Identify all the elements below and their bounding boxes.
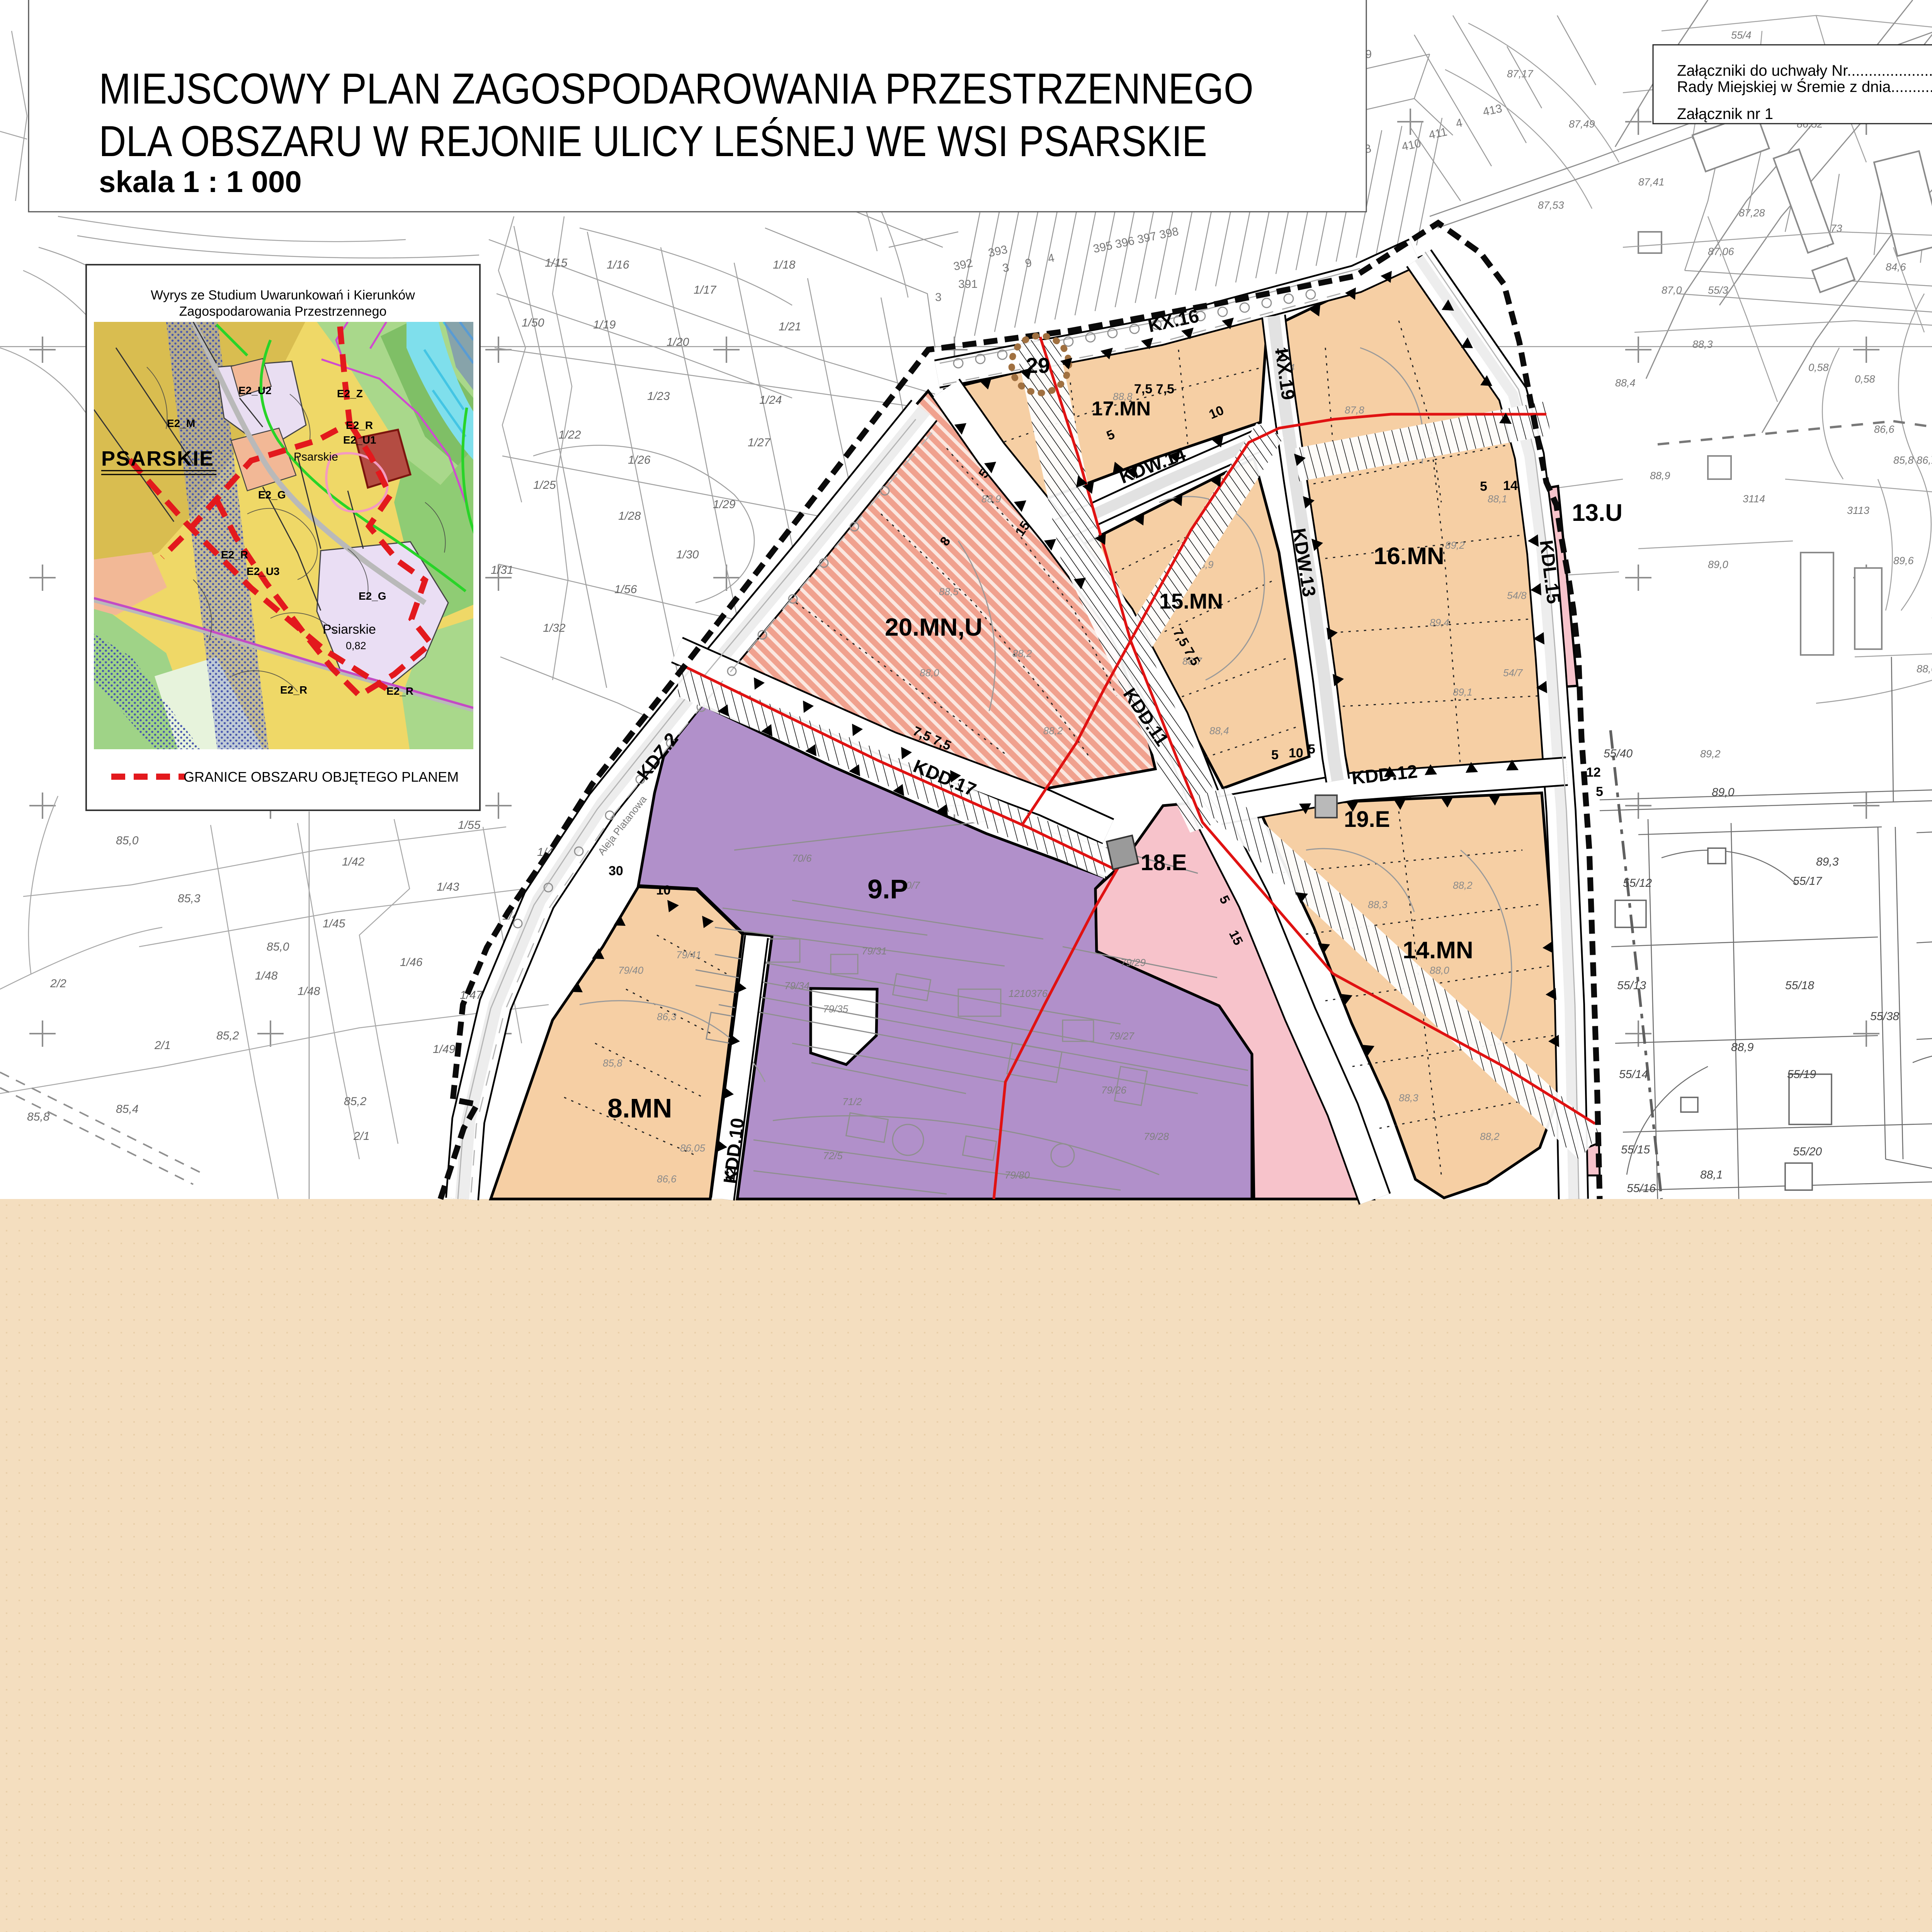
svg-text:86,6: 86,6 (1874, 423, 1895, 435)
svg-text:87,06: 87,06 (1708, 246, 1735, 257)
svg-text:86,05: 86,05 (680, 1142, 706, 1154)
svg-text:3113: 3113 (1847, 505, 1869, 516)
svg-text:0,82: 0,82 (346, 640, 366, 651)
svg-text:55/12: 55/12 (1623, 877, 1652, 889)
svg-text:88,9: 88,9 (1650, 470, 1670, 481)
svg-text:391: 391 (958, 278, 978, 291)
svg-text:1/24: 1/24 (759, 394, 782, 406)
svg-text:79/80: 79/80 (1005, 1169, 1030, 1181)
svg-text:85,2: 85,2 (344, 1095, 367, 1108)
svg-text:15.MN: 15.MN (1159, 589, 1223, 613)
svg-text:18.E: 18.E (1141, 850, 1187, 875)
svg-text:E2_R: E2_R (221, 549, 248, 561)
svg-text:1/31: 1/31 (491, 564, 513, 577)
svg-text:Rady Miejskiej w Śremie z dnia: Rady Miejskiej w Śremie z dnia..........… (1677, 78, 1932, 95)
svg-text:2/1: 2/1 (154, 1039, 171, 1052)
svg-text:1/45: 1/45 (323, 917, 345, 930)
svg-text:79/31: 79/31 (862, 945, 887, 957)
svg-text:Wyrys ze Studium Uwarunkowań i: Wyrys ze Studium Uwarunkowań i Kierunków (151, 288, 415, 303)
svg-text:88,2: 88,2 (1043, 725, 1063, 736)
svg-text:79/35: 79/35 (823, 1003, 849, 1015)
svg-text:Psiarskie: Psiarskie (323, 622, 376, 637)
svg-text:14.MN: 14.MN (1403, 937, 1473, 964)
svg-text:88,9: 88,9 (981, 493, 1001, 505)
svg-text:30: 30 (609, 864, 623, 878)
svg-text:79/40: 79/40 (618, 964, 644, 976)
svg-text:E2_Z: E2_Z (337, 388, 363, 400)
svg-text:89,1: 89,1 (1453, 686, 1473, 698)
svg-text:1/29: 1/29 (713, 498, 736, 511)
svg-text:71/2: 71/2 (842, 1096, 862, 1107)
svg-text:1/23: 1/23 (647, 390, 670, 403)
svg-text:skala 1 : 1 000: skala 1 : 1 000 (99, 165, 302, 199)
svg-text:85,8 86,1: 85,8 86,1 (1893, 454, 1932, 466)
svg-text:1/46: 1/46 (400, 956, 423, 969)
svg-text:89,0: 89,0 (1708, 559, 1728, 570)
svg-text:55/14: 55/14 (1619, 1068, 1648, 1081)
svg-text:86,3: 86,3 (657, 1011, 677, 1022)
svg-text:E2_U3: E2_U3 (247, 565, 280, 577)
svg-text:Zagospodarowania Przestrzenneg: Zagospodarowania Przestrzennego (179, 304, 387, 319)
svg-text:1/25: 1/25 (533, 479, 556, 492)
svg-text:GRANICE OBSZARU OBJĘTEGO PLANE: GRANICE OBSZARU OBJĘTEGO PLANEM (184, 769, 459, 785)
svg-text:54/7: 54/7 (1503, 667, 1523, 679)
svg-text:1/48: 1/48 (298, 985, 320, 998)
svg-text:87,49: 87,49 (1569, 118, 1595, 130)
svg-text:88,2: 88,2 (1012, 648, 1032, 659)
svg-text:88,5: 88,5 (939, 586, 959, 597)
svg-text:87,8: 87,8 (1345, 404, 1364, 416)
svg-text:79/26: 79/26 (1101, 1084, 1127, 1096)
svg-text:5: 5 (1596, 784, 1603, 799)
svg-text:85,0: 85,0 (267, 940, 289, 953)
svg-text:8.MN: 8.MN (607, 1093, 672, 1123)
svg-text:87,28: 87,28 (1739, 207, 1765, 219)
svg-text:70/6: 70/6 (792, 852, 812, 864)
svg-text:1/56: 1/56 (614, 583, 637, 596)
svg-text:12: 12 (1586, 765, 1601, 780)
svg-text:16.MN: 16.MN (1374, 543, 1444, 570)
svg-text:1/19: 1/19 (593, 318, 616, 331)
svg-text:79/28: 79/28 (1144, 1131, 1169, 1142)
svg-text:2/1: 2/1 (353, 1130, 370, 1143)
svg-text:85,2: 85,2 (216, 1029, 239, 1042)
svg-text:1/42: 1/42 (342, 855, 365, 868)
svg-text:86,6: 86,6 (657, 1173, 677, 1185)
svg-text:88,1: 88,1 (1700, 1168, 1723, 1181)
svg-text:2/2: 2/2 (50, 977, 66, 990)
svg-text:5: 5 (1308, 742, 1315, 757)
svg-text:55/17: 55/17 (1793, 875, 1822, 888)
svg-text:55/3: 55/3 (1708, 284, 1728, 296)
svg-text:55/20: 55/20 (1793, 1145, 1822, 1158)
svg-text:1/17: 1/17 (694, 284, 717, 296)
svg-text:5: 5 (1480, 479, 1487, 494)
svg-text:3114: 3114 (1743, 493, 1765, 505)
svg-text:1/32: 1/32 (543, 622, 566, 634)
svg-text:88,1: 88,1 (1488, 493, 1507, 505)
svg-text:7,5 7,5: 7,5 7,5 (1134, 382, 1174, 396)
svg-text:85,4: 85,4 (116, 1103, 138, 1116)
svg-text:1/15: 1/15 (545, 257, 568, 269)
svg-text:85,8: 85,8 (603, 1057, 622, 1069)
svg-text:1/20: 1/20 (667, 336, 689, 349)
svg-text:E2_U1: E2_U1 (343, 434, 376, 446)
svg-text:55/4: 55/4 (1731, 29, 1752, 41)
svg-text:89,3: 89,3 (1816, 855, 1839, 868)
svg-text:88,2: 88,2 (1480, 1131, 1500, 1142)
svg-text:10: 10 (656, 883, 671, 898)
svg-text:20.MN,U: 20.MN,U (885, 613, 983, 641)
svg-text:19.E: 19.E (1344, 807, 1390, 832)
svg-text:79/27: 79/27 (1109, 1030, 1135, 1042)
svg-text:89,4: 89,4 (1430, 617, 1449, 628)
svg-text:88,3: 88,3 (1399, 1092, 1418, 1104)
svg-text:1/18: 1/18 (773, 259, 796, 271)
svg-text:88,6: 88,6 (1917, 663, 1932, 675)
svg-text:87,53: 87,53 (1538, 199, 1564, 211)
svg-text:E2_U2: E2_U2 (238, 384, 272, 396)
svg-text:13.U: 13.U (1572, 500, 1622, 526)
svg-text:88,4: 88,4 (1615, 377, 1636, 389)
svg-text:55/19: 55/19 (1787, 1068, 1816, 1081)
svg-text:10: 10 (1289, 746, 1303, 760)
svg-text:1/28: 1/28 (618, 510, 641, 522)
svg-text:55/18: 55/18 (1785, 979, 1814, 992)
svg-text:88,0: 88,0 (920, 667, 939, 679)
svg-text:87,41: 87,41 (1638, 176, 1665, 188)
svg-text:14: 14 (1503, 478, 1518, 493)
svg-text:88,3: 88,3 (1692, 338, 1713, 350)
svg-text:1/22: 1/22 (558, 429, 581, 441)
svg-text:1/55: 1/55 (458, 819, 481, 832)
svg-text:89,6: 89,6 (1893, 555, 1914, 566)
svg-text:85,0: 85,0 (116, 834, 139, 847)
svg-text:9.P: 9.P (867, 874, 908, 904)
svg-text:MIEJSCOWY PLAN ZAGOSPODAROWANI: MIEJSCOWY PLAN ZAGOSPODAROWANIA PRZESTRZ… (99, 65, 1253, 113)
svg-text:E2_G: E2_G (258, 489, 286, 501)
svg-text:E2_G: E2_G (359, 590, 386, 602)
svg-text:1/26: 1/26 (628, 454, 651, 466)
svg-text:88,2: 88,2 (1453, 879, 1473, 891)
svg-text:79/41: 79/41 (676, 949, 701, 961)
svg-text:1/48: 1/48 (255, 969, 278, 982)
svg-text:55/15: 55/15 (1621, 1143, 1650, 1156)
svg-text:Załącznik nr 1: Załącznik nr 1 (1677, 105, 1773, 122)
svg-text:1/30: 1/30 (676, 548, 699, 561)
svg-text:1/27: 1/27 (748, 436, 771, 449)
svg-text:1/21: 1/21 (779, 320, 801, 333)
svg-text:1/43: 1/43 (437, 881, 459, 893)
svg-text:Psarskie: Psarskie (294, 451, 338, 463)
svg-text:85,3: 85,3 (178, 892, 201, 905)
svg-text:79/29: 79/29 (1121, 957, 1146, 968)
svg-text:88,3: 88,3 (1368, 899, 1388, 910)
svg-text:PSARSKIE: PSARSKIE (101, 447, 214, 470)
svg-text:84,6: 84,6 (1886, 261, 1906, 273)
svg-text:E2_R: E2_R (346, 419, 373, 431)
svg-text:0,58: 0,58 (1808, 362, 1829, 373)
svg-text:79/34: 79/34 (784, 980, 810, 992)
svg-text:1/50: 1/50 (522, 316, 544, 329)
svg-text:17.MN: 17.MN (1092, 398, 1151, 420)
svg-text:E2_M: E2_M (167, 417, 195, 429)
svg-text:55/13: 55/13 (1617, 979, 1646, 992)
svg-text:72/5: 72/5 (823, 1150, 843, 1162)
svg-text:55/16: 55/16 (1627, 1182, 1656, 1195)
svg-text:54/8: 54/8 (1507, 590, 1527, 601)
svg-text:88,0: 88,0 (1430, 964, 1449, 976)
svg-text:DLA OBSZARU W REJONIE ULICY LE: DLA OBSZARU W REJONIE ULICY LEŚNEJ WE WS… (99, 117, 1207, 165)
svg-text:89,0: 89,0 (1712, 786, 1735, 799)
svg-text:85,8: 85,8 (27, 1111, 50, 1123)
svg-text:1210376: 1210376 (1009, 988, 1048, 999)
svg-text:5: 5 (1271, 748, 1279, 762)
svg-text:E2_R: E2_R (280, 684, 307, 696)
svg-text:Załączniki do uchwały Nr......: Załączniki do uchwały Nr................… (1677, 62, 1932, 79)
svg-text:89,2: 89,2 (1700, 748, 1721, 760)
svg-text:89,2: 89,2 (1445, 539, 1465, 551)
svg-text:29: 29 (1026, 353, 1050, 378)
svg-text:1/49: 1/49 (433, 1043, 456, 1056)
svg-text:88,4: 88,4 (1209, 725, 1229, 736)
svg-text:E2_R: E2_R (386, 685, 413, 697)
svg-text:88,9: 88,9 (1731, 1041, 1754, 1054)
svg-text:0,58: 0,58 (1855, 373, 1875, 385)
svg-text:55/40: 55/40 (1604, 747, 1633, 760)
svg-text:1/16: 1/16 (607, 259, 629, 271)
svg-text:55/38: 55/38 (1870, 1010, 1899, 1023)
